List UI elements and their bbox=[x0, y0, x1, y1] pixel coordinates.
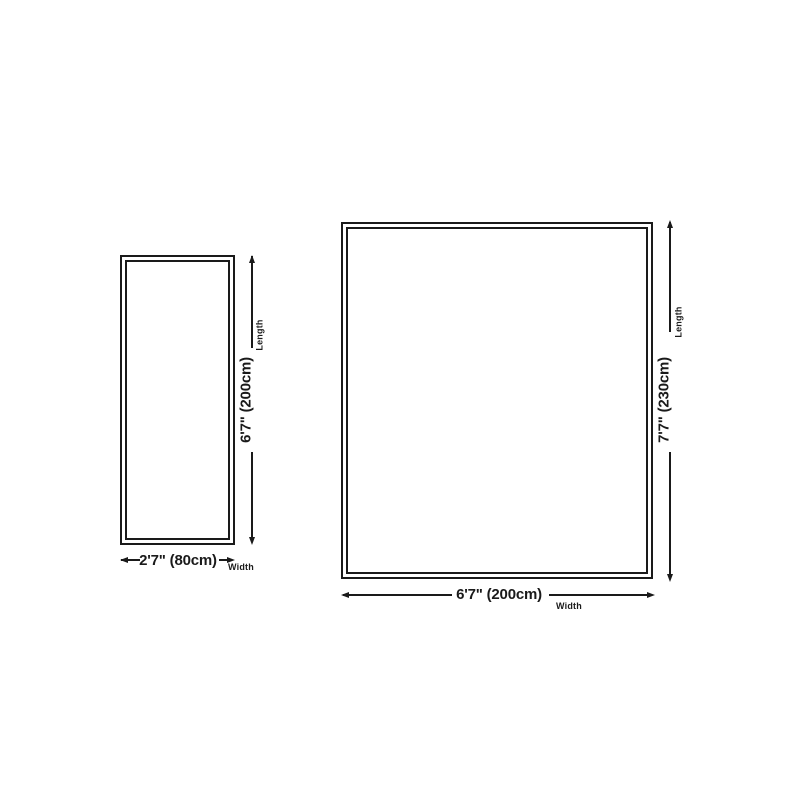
size-diagram-canvas: 6'7" (200cm) Length 2'7" (80cm) Width 7'… bbox=[0, 0, 800, 800]
small-length-arrow-up-icon bbox=[249, 255, 255, 263]
large-length-arrow-up-icon bbox=[667, 220, 673, 228]
small-length-arrow-down-icon bbox=[249, 537, 255, 545]
small-rug-inner-border bbox=[125, 260, 230, 540]
large-width-arrow-right-icon bbox=[647, 592, 655, 598]
large-length-arrow-down-icon bbox=[667, 574, 673, 582]
large-width-label: Width bbox=[539, 600, 599, 612]
large-length-label: Length bbox=[672, 282, 686, 363]
large-rug-inner-border bbox=[346, 227, 648, 574]
large-rug-outline bbox=[341, 222, 653, 579]
small-length-label: Length bbox=[253, 295, 267, 376]
large-width-arrow-left-icon bbox=[341, 592, 349, 598]
small-width-label: Width bbox=[211, 561, 271, 573]
small-rug-outline bbox=[120, 255, 235, 545]
